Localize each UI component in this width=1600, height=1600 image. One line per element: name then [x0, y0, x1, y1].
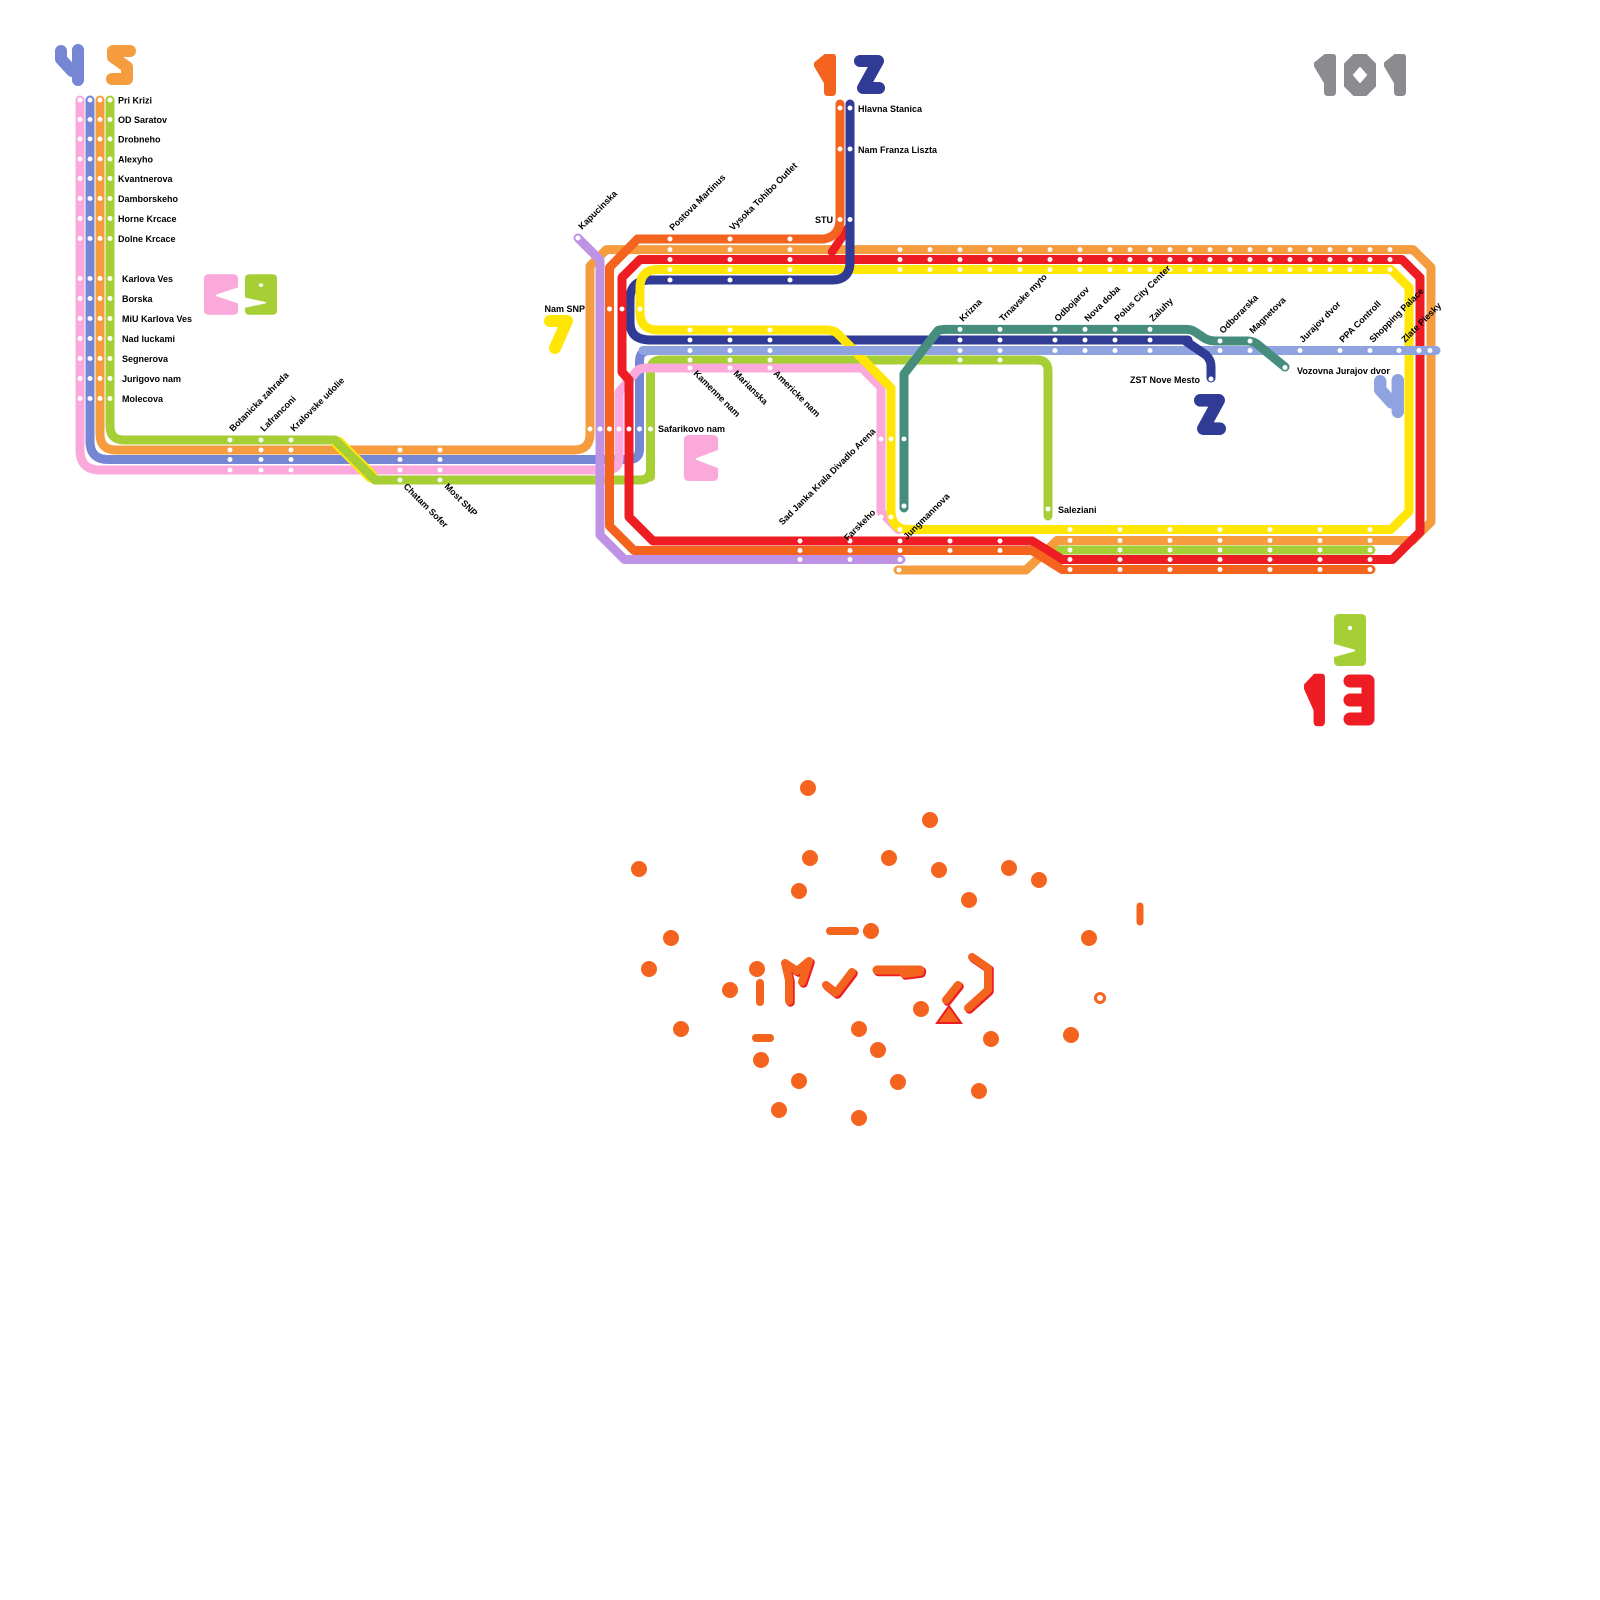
svg-text:Horne Krcace: Horne Krcace	[118, 214, 177, 224]
svg-text:ZST Nove Mesto: ZST Nove Mesto	[1130, 375, 1201, 385]
svg-text:OD Saratov: OD Saratov	[118, 115, 167, 125]
svg-text:Safarikovo nam: Safarikovo nam	[658, 424, 725, 434]
svg-text:Hlavna Stanica: Hlavna Stanica	[858, 104, 923, 114]
svg-text:Nad luckami: Nad luckami	[122, 334, 175, 344]
svg-text:Karlova Ves: Karlova Ves	[122, 274, 173, 284]
svg-text:Kvantnerova: Kvantnerova	[118, 174, 174, 184]
svg-text:Pri Krizi: Pri Krizi	[118, 96, 152, 106]
svg-text:Jurigovo nam: Jurigovo nam	[122, 374, 181, 384]
svg-text:Nam SNP: Nam SNP	[544, 304, 585, 314]
svg-text:Alexyho: Alexyho	[118, 155, 154, 165]
svg-text:Dolne Krcace: Dolne Krcace	[118, 234, 176, 244]
svg-text:Drobneho: Drobneho	[118, 135, 161, 145]
svg-text:STU: STU	[815, 215, 833, 225]
svg-text:Borska: Borska	[122, 294, 154, 304]
svg-text:Saleziani: Saleziani	[1058, 505, 1097, 515]
svg-text:Damborskeho: Damborskeho	[118, 194, 179, 204]
svg-text:Segnerova: Segnerova	[122, 354, 169, 364]
svg-text:Nam Franza Liszta: Nam Franza Liszta	[858, 145, 938, 155]
svg-text:Vozovna Jurajov dvor: Vozovna Jurajov dvor	[1297, 366, 1390, 376]
svg-text:MiU Karlova Ves: MiU Karlova Ves	[122, 314, 192, 324]
svg-text:Molecova: Molecova	[122, 394, 164, 404]
